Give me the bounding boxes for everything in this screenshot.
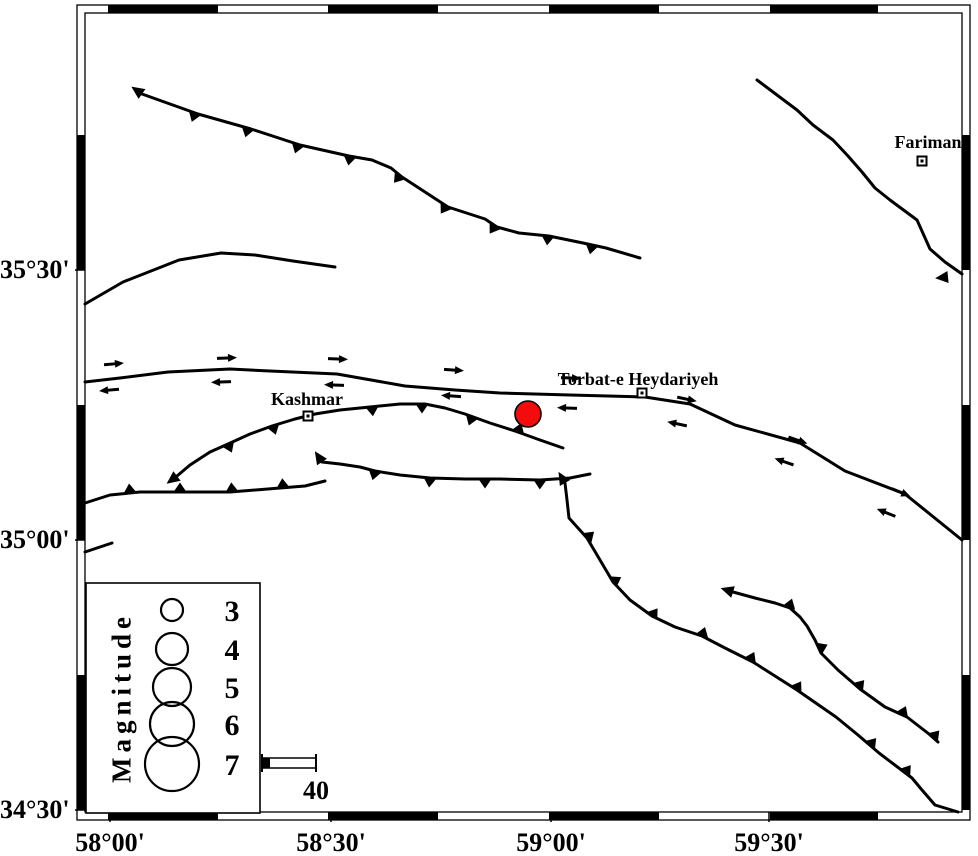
- legend-mag-3: 3: [212, 595, 252, 629]
- fault-line-south-thrust-west: [85, 481, 325, 503]
- map-figure: 35°30' 35°00' 34°30' 58°00' 58°30' 59°00…: [0, 0, 978, 856]
- city-label-torbat: Torbat-e Heydariyeh: [528, 369, 748, 390]
- thrust-barb: [366, 406, 379, 416]
- lon-label-58-00: 58°00': [55, 828, 165, 856]
- slip-arrow-west: [875, 505, 897, 520]
- slip-arrow-east: [217, 354, 237, 363]
- thrust-barb: [226, 482, 239, 492]
- scalebar-fill: [262, 758, 270, 768]
- frame-band-left: [77, 135, 85, 270]
- legend-mag-5: 5: [212, 672, 252, 706]
- fault-line-south-thrust-east: [322, 462, 590, 480]
- frame-band-left: [77, 405, 85, 540]
- legend-mag-7: 7: [212, 749, 252, 783]
- thrust-barb: [542, 235, 555, 245]
- lat-label-35-30: 35°30': [0, 255, 67, 285]
- frame-band-top: [328, 5, 438, 13]
- earthquake-marker: [515, 401, 541, 427]
- lon-label-59-30: 59°30': [714, 828, 824, 856]
- slip-arrow-east: [104, 359, 125, 369]
- city-marker-dot: [921, 160, 924, 163]
- fault-line-se-thrust-short: [733, 592, 938, 742]
- fault-line-main-strike-slip-fault: [85, 369, 962, 540]
- city-marker-dot: [641, 392, 644, 395]
- slip-arrow-east: [328, 355, 348, 364]
- legend-mag-4: 4: [212, 634, 252, 668]
- fault-tip-arrow: [131, 87, 145, 99]
- slip-arrow-west: [441, 391, 462, 400]
- lat-label-34-30: 34°30': [0, 795, 67, 825]
- lat-label-35-00: 35°00': [0, 525, 67, 555]
- city-label-fariman: Fariman: [868, 132, 978, 153]
- legend-mag-6: 6: [212, 709, 252, 743]
- legend-title: Magnitude: [107, 598, 138, 798]
- frame-band-top: [549, 5, 659, 13]
- frame-band-left: [77, 675, 85, 810]
- frame-band-right: [962, 135, 970, 270]
- frame-band-top: [108, 5, 218, 13]
- slip-arrow-west: [324, 381, 344, 390]
- fault-line-left-short-segment: [85, 543, 112, 552]
- lon-label-59-00: 59°00': [496, 828, 606, 856]
- fault-line-north-thrust-fault: [142, 94, 640, 258]
- fault-tip-arrow: [721, 586, 735, 597]
- frame-band-top: [770, 5, 878, 13]
- slip-arrow-west: [773, 455, 795, 469]
- slip-arrow-east: [444, 365, 465, 374]
- thrust-barb: [277, 478, 290, 488]
- scalebar-bar: [262, 758, 316, 768]
- frame-band-bottom: [549, 812, 659, 820]
- fault-line-north-curve-fault: [85, 253, 335, 304]
- fault-line-northeast-fault: [757, 80, 962, 274]
- scalebar-label: 40: [286, 776, 346, 806]
- thrust-barb: [479, 479, 492, 489]
- frame-band-bottom: [328, 812, 438, 820]
- fault-line-kashmar-thrust-fault: [177, 404, 563, 476]
- slip-arrow-west: [99, 385, 120, 395]
- thrust-barb: [174, 483, 187, 493]
- thrust-barb: [416, 404, 429, 414]
- thrust-barb: [534, 480, 547, 490]
- slip-arrow-west: [211, 378, 231, 387]
- thrust-barb: [124, 484, 137, 494]
- slip-arrow-west: [557, 404, 577, 413]
- thrust-barb: [424, 477, 437, 487]
- map-canvas: [0, 0, 978, 856]
- city-label-kashmar: Kashmar: [247, 389, 367, 410]
- fault-line-se-thrust-long: [565, 483, 958, 812]
- fault-tip-arrow: [935, 271, 948, 283]
- slip-arrow-west: [666, 418, 687, 430]
- lon-label-58-30: 58°30': [276, 828, 386, 856]
- city-marker-dot: [307, 415, 310, 418]
- frame-band-right: [962, 405, 970, 540]
- frame-band-bottom: [770, 812, 878, 820]
- frame-band-right: [962, 675, 970, 810]
